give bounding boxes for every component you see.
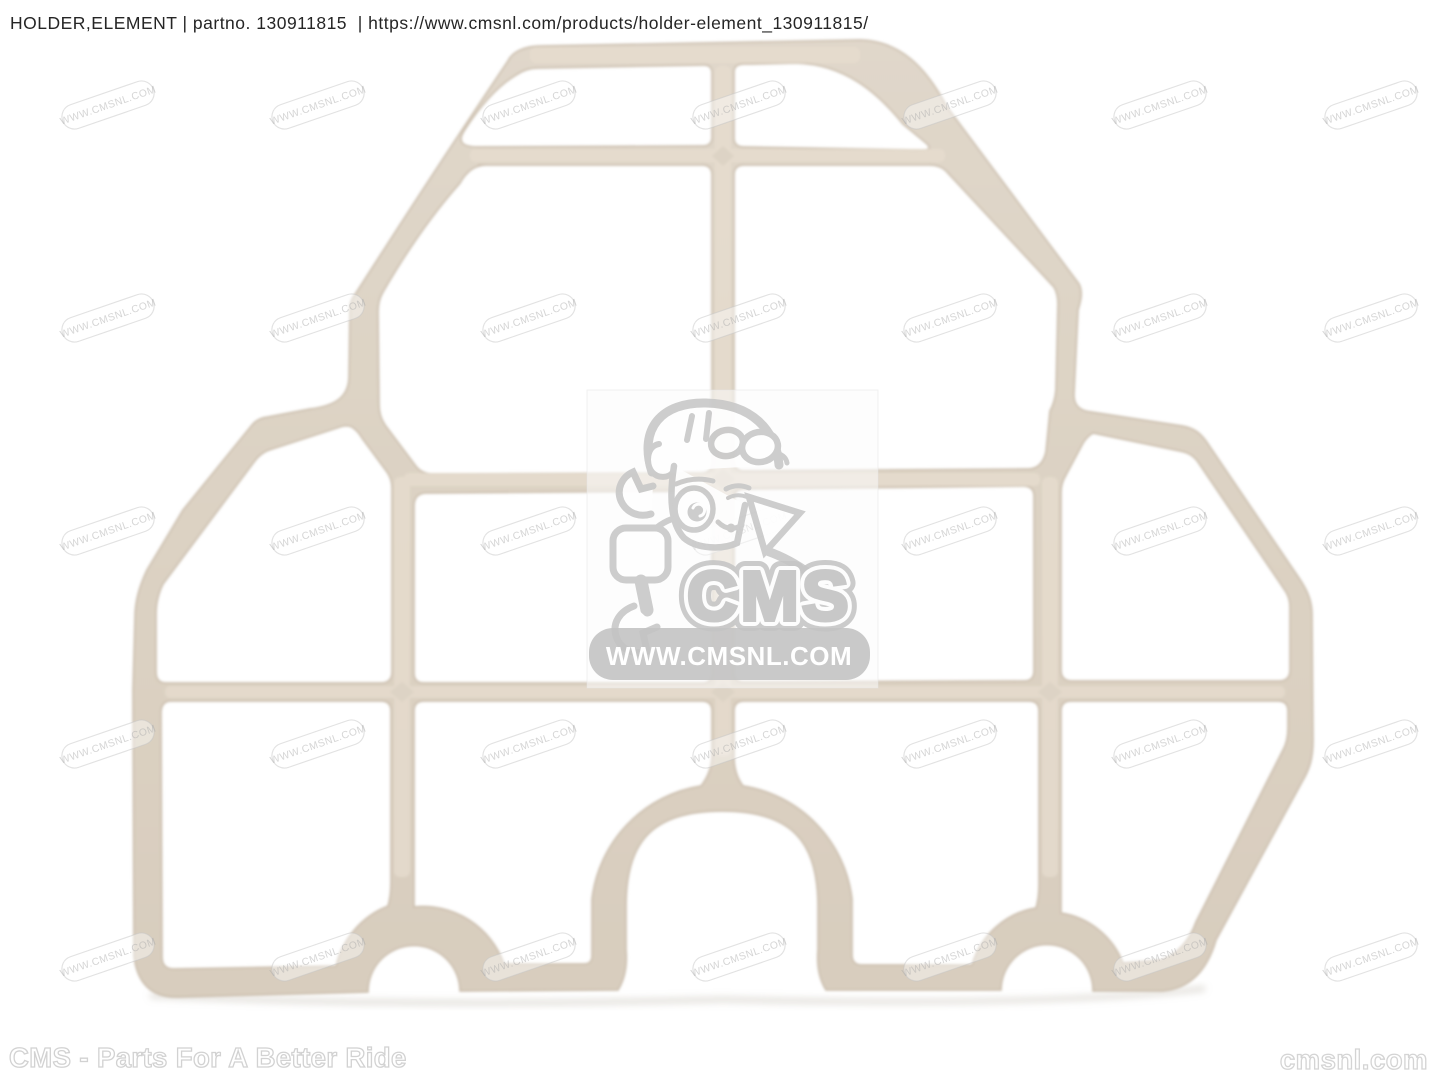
svg-text:CMS: CMS — [687, 557, 852, 635]
svg-text:WWW.CMSNL.COM: WWW.CMSNL.COM — [606, 641, 852, 671]
